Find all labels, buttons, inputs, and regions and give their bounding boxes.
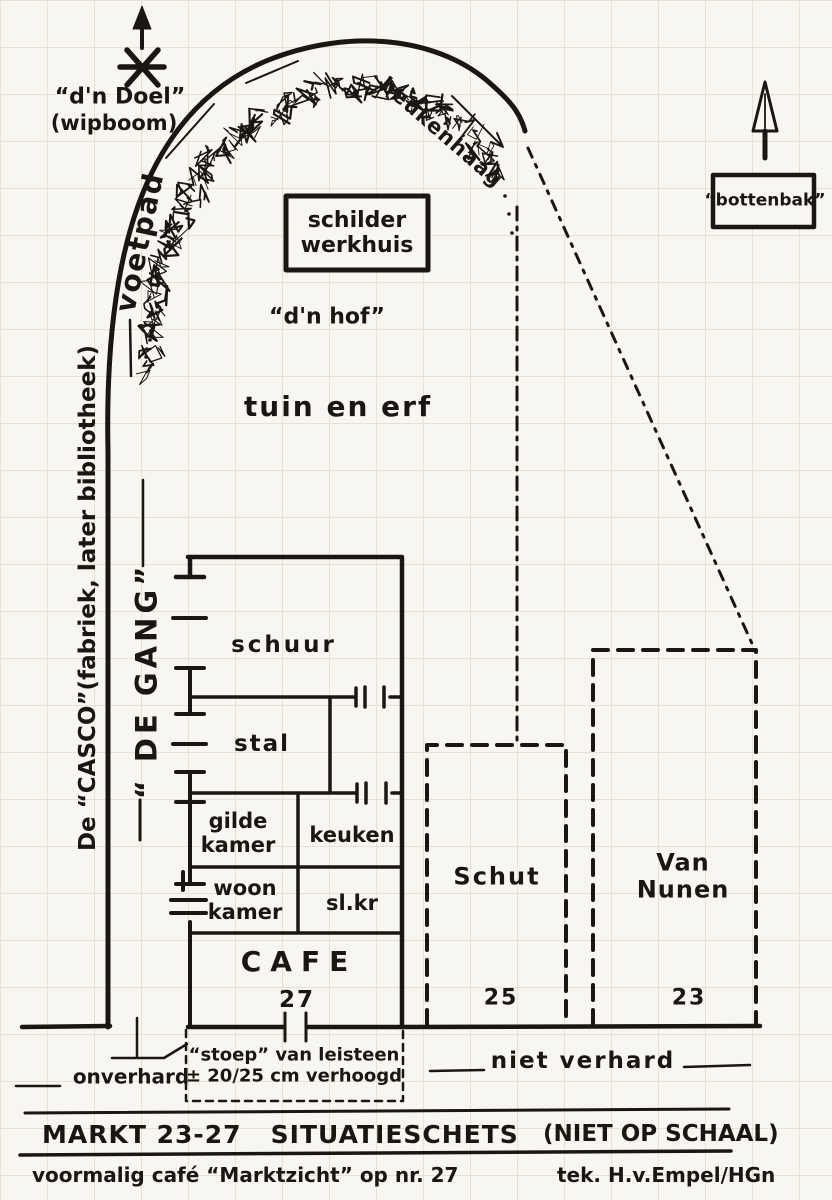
label-room-schuur: schuur [231,632,337,658]
label-room-keuken: keuken [309,824,394,848]
title-rule-bottom [20,1151,731,1155]
label-cafe: CAFE [241,946,357,978]
title-subtitle: voormalig café “Marktzicht” op nr. 27 [32,1164,458,1186]
label-tuin-en-erf: tuin en erf [244,391,432,423]
vannunen-plot-outline [593,650,756,1025]
label-cafe-number: 27 [279,987,315,1013]
hedge-stroke [139,325,160,337]
hedge-dot [507,212,511,216]
gang-end-mark [112,1018,187,1058]
label-room-woon-kamer: woon kamer [208,877,283,925]
cafe-door-marks [285,1013,306,1041]
label-casco: De “CASCO”(fabriek, later bibliotheek) [75,345,101,851]
site-plan-drawing [0,0,832,1200]
title-rule-top [25,1109,729,1113]
label-room-gilde-kamer: gilde kamer [201,810,276,858]
label-dn-hof: “d'n hof” [269,304,385,329]
title-credit: tek. H.v.Empel/HGn [557,1164,775,1186]
label-bottenbak: “bottenbak” [704,191,825,210]
hedge-dot [510,231,514,235]
hedge-stroke [158,346,165,356]
north-arrow-icon [753,82,777,158]
hedge-stroke [249,109,268,113]
label-onverhard: onverhard [73,1066,189,1089]
label-de-gang: “ DE GANG” [130,563,163,800]
label-dn-doel: “d'n Doel” [55,84,186,109]
niet-verhard-dash-left [430,1070,484,1071]
title-text: MARKT 23-27 SITUATIESCHETS [42,1121,519,1149]
hedge-dot [503,194,507,198]
label-neighbor-vannunen-number: 23 [672,985,707,1010]
label-niet-verhard: niet verhard [491,1048,676,1074]
label-room-slaapkamer: sl.kr [326,892,378,916]
niet-verhard-dash-right [684,1065,750,1067]
label-stoep-note: “stoep” van leisteen ± 20/25 cm verhoogd [186,1045,402,1086]
label-neighbor-schut-number: 25 [484,985,519,1010]
label-neighbor-vannunen: Van Nunen [609,850,758,905]
label-neighbor-schut: Schut [453,863,540,890]
scanned-site-sketch: “d'n Doel” (wipboom) voetpad beukenhaag … [0,0,832,1200]
hedge-dot [151,323,155,327]
voetpad-dash [130,320,131,376]
label-schilder-werkhuis: schilder werkhuis [301,208,414,258]
doel-marker-icon [120,6,164,85]
street-line-left [22,1026,110,1027]
label-wipboom: (wipboom) [51,112,178,136]
title-scale-note: (NIET OP SCHAAL) [543,1122,779,1147]
hedge-dot [148,338,152,342]
street-line-right [402,1026,760,1027]
hedge-stroke [136,366,150,384]
label-room-stal: stal [234,731,290,757]
hedge-stroke [283,106,296,111]
hedge-dot [144,355,148,359]
